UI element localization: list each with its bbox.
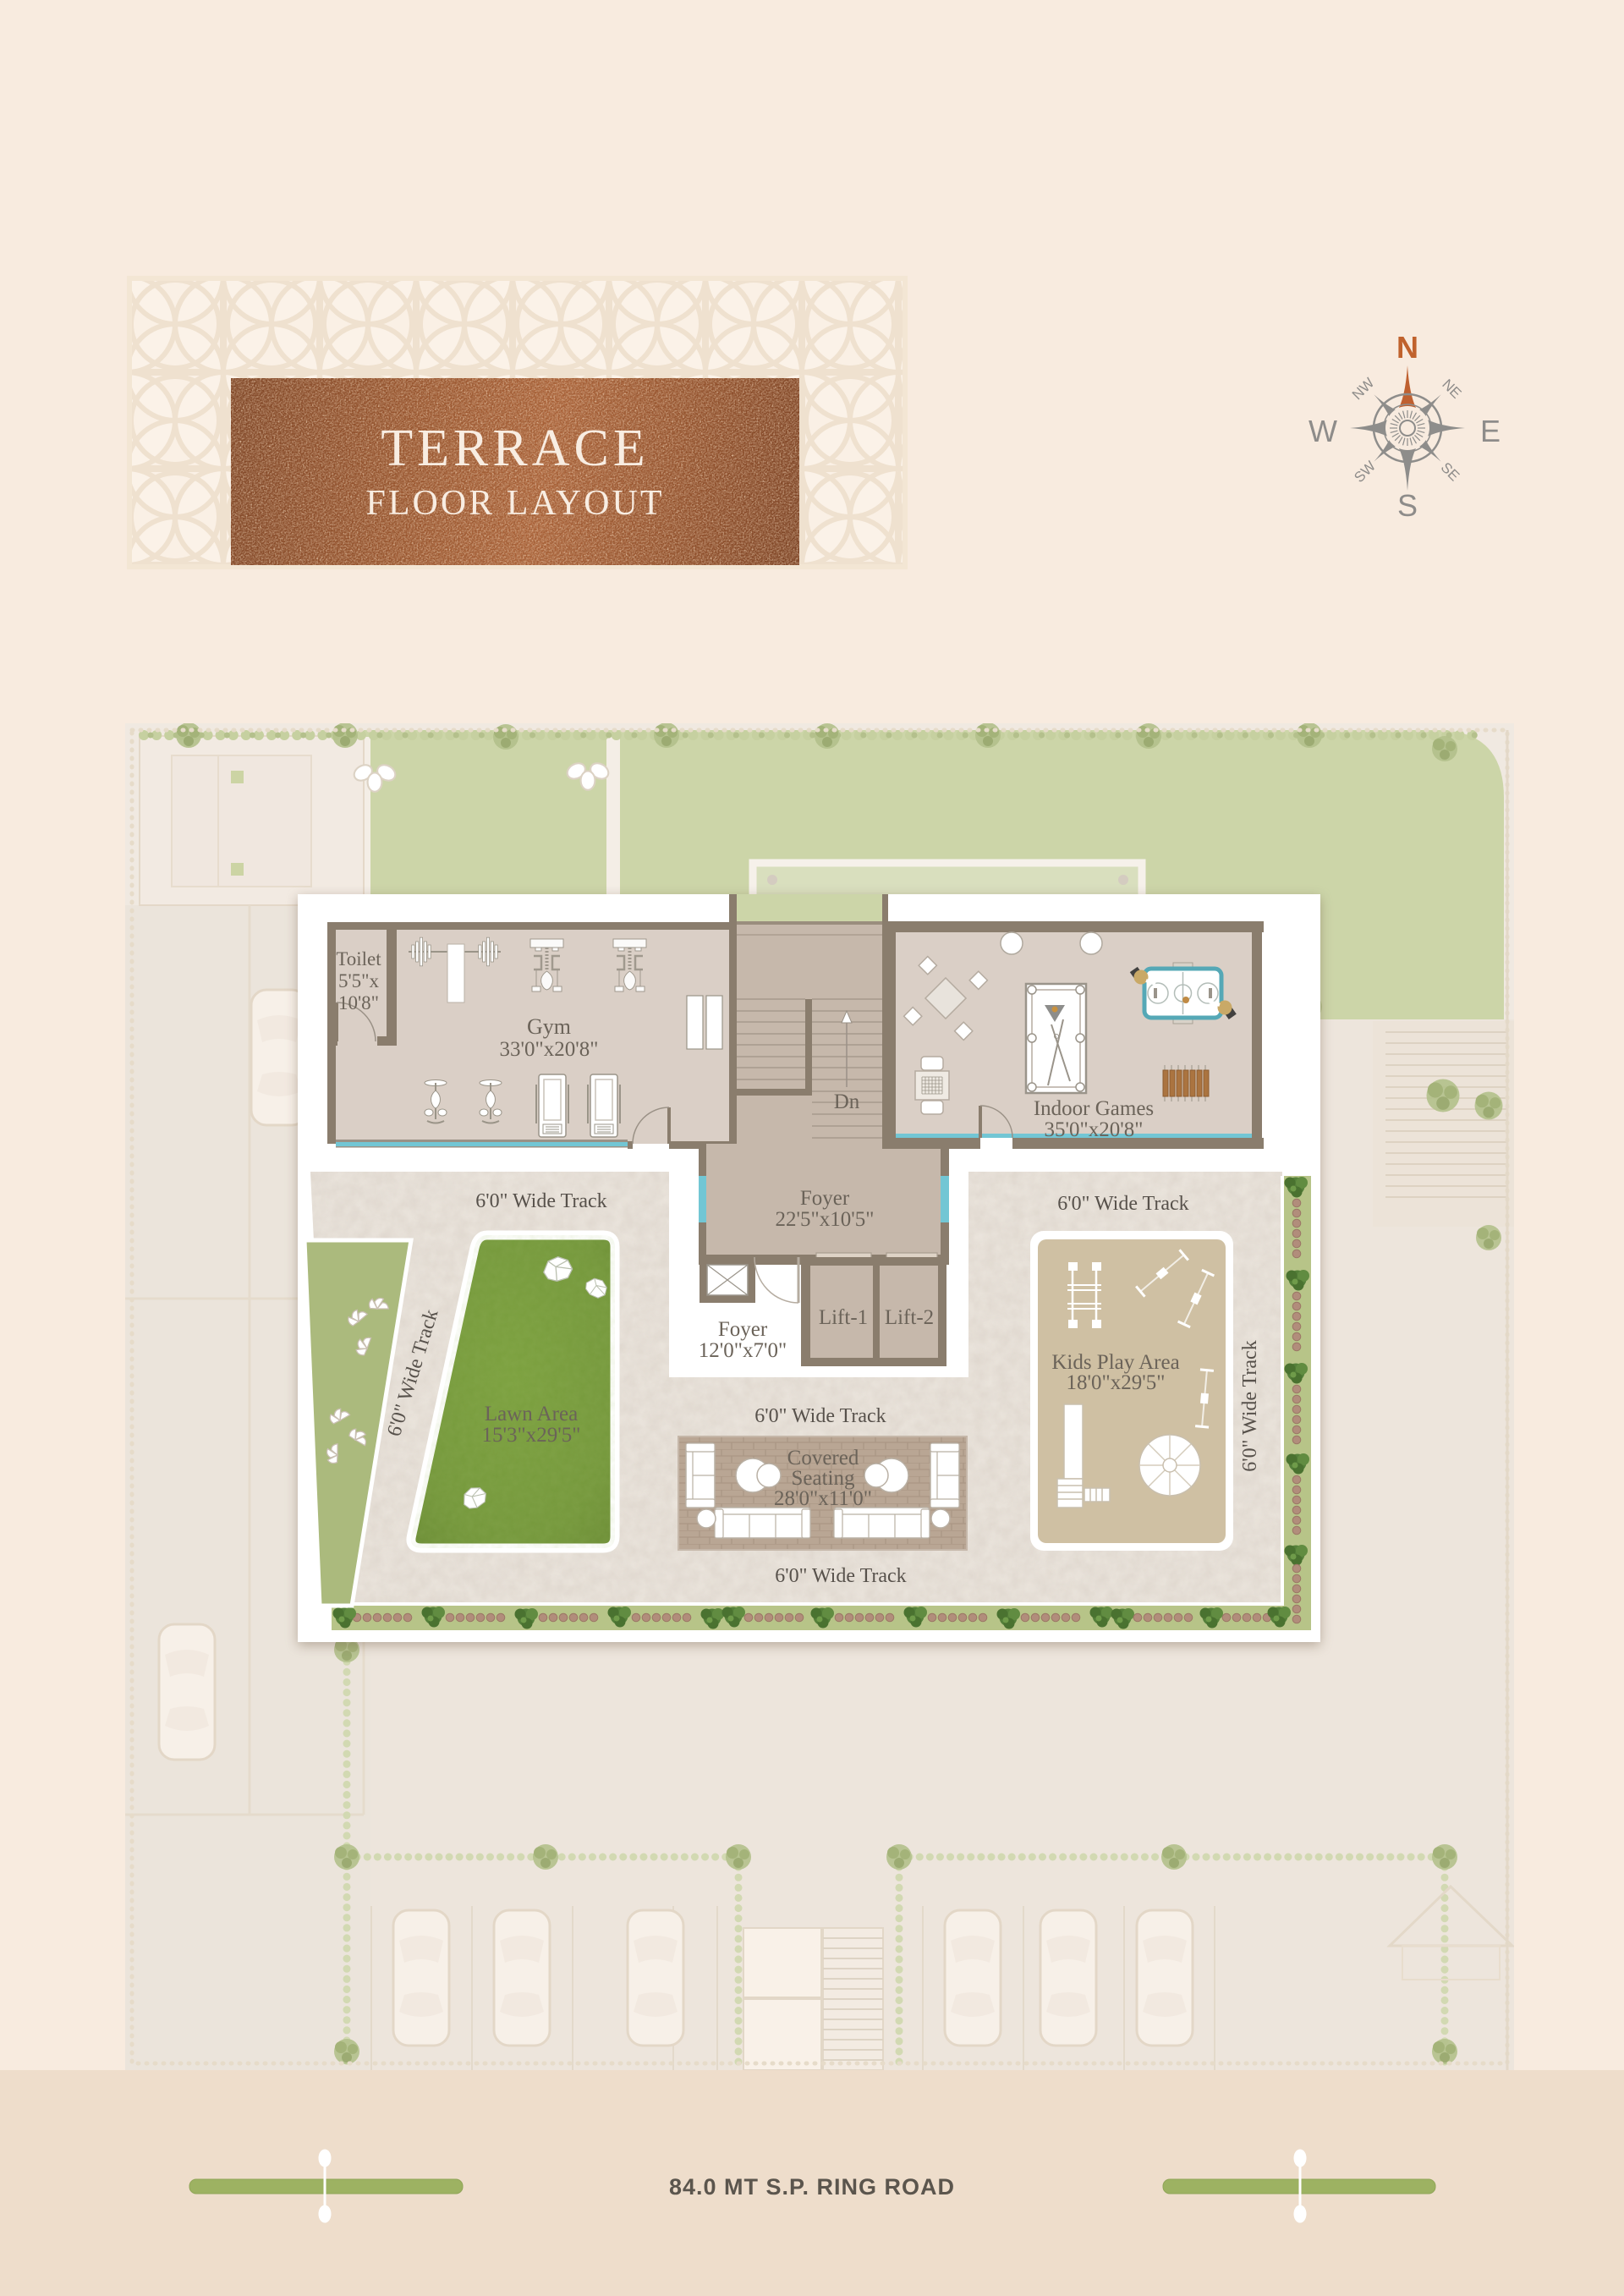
svg-text:SW: SW bbox=[1351, 458, 1379, 486]
svg-text:35'0"x20'8": 35'0"x20'8" bbox=[1045, 1118, 1144, 1141]
svg-text:28'0"x11'0": 28'0"x11'0" bbox=[774, 1487, 872, 1510]
svg-text:33'0"x20'8": 33'0"x20'8" bbox=[500, 1038, 599, 1061]
svg-text:NW: NW bbox=[1349, 375, 1377, 403]
svg-text:Foyer: Foyer bbox=[800, 1187, 850, 1210]
svg-text:22'5"x10'5": 22'5"x10'5" bbox=[776, 1208, 875, 1231]
svg-text:12'0"x7'0": 12'0"x7'0" bbox=[699, 1339, 787, 1362]
svg-text:SE: SE bbox=[1438, 459, 1462, 484]
svg-text:6'0" Wide Track: 6'0" Wide Track bbox=[1057, 1193, 1188, 1215]
svg-text:10'8": 10'8" bbox=[338, 992, 379, 1013]
svg-text:15'3"x29'5": 15'3"x29'5" bbox=[482, 1424, 581, 1447]
svg-text:6'0" Wide Track: 6'0" Wide Track bbox=[475, 1190, 606, 1212]
svg-text:6'0" Wide Track: 6'0" Wide Track bbox=[775, 1565, 906, 1587]
svg-text:Seating: Seating bbox=[792, 1467, 855, 1490]
svg-text:Kids Play Area: Kids Play Area bbox=[1051, 1351, 1179, 1374]
svg-text:Dn: Dn bbox=[834, 1090, 860, 1113]
svg-text:Lawn Area: Lawn Area bbox=[485, 1403, 578, 1425]
svg-text:Covered: Covered bbox=[787, 1447, 859, 1469]
svg-text:W: W bbox=[1309, 414, 1337, 448]
svg-text:Lift-1: Lift-1 bbox=[819, 1306, 868, 1329]
svg-text:NE: NE bbox=[1439, 376, 1464, 402]
svg-text:18'0"x29'5": 18'0"x29'5" bbox=[1067, 1371, 1166, 1394]
svg-text:6'0" Wide Track: 6'0" Wide Track bbox=[1239, 1340, 1261, 1471]
svg-text:S: S bbox=[1397, 488, 1418, 523]
svg-text:Gym: Gym bbox=[527, 1014, 571, 1039]
svg-text:Lift-2: Lift-2 bbox=[885, 1306, 934, 1329]
svg-text:Foyer: Foyer bbox=[718, 1318, 768, 1341]
svg-text:5'5"x: 5'5"x bbox=[338, 970, 380, 991]
svg-text:Toilet: Toilet bbox=[336, 948, 381, 969]
svg-text:N: N bbox=[1396, 330, 1418, 365]
svg-text:Indoor Games: Indoor Games bbox=[1034, 1097, 1154, 1120]
svg-text:E: E bbox=[1480, 414, 1501, 448]
svg-text:6'0" Wide Track: 6'0" Wide Track bbox=[754, 1405, 886, 1427]
